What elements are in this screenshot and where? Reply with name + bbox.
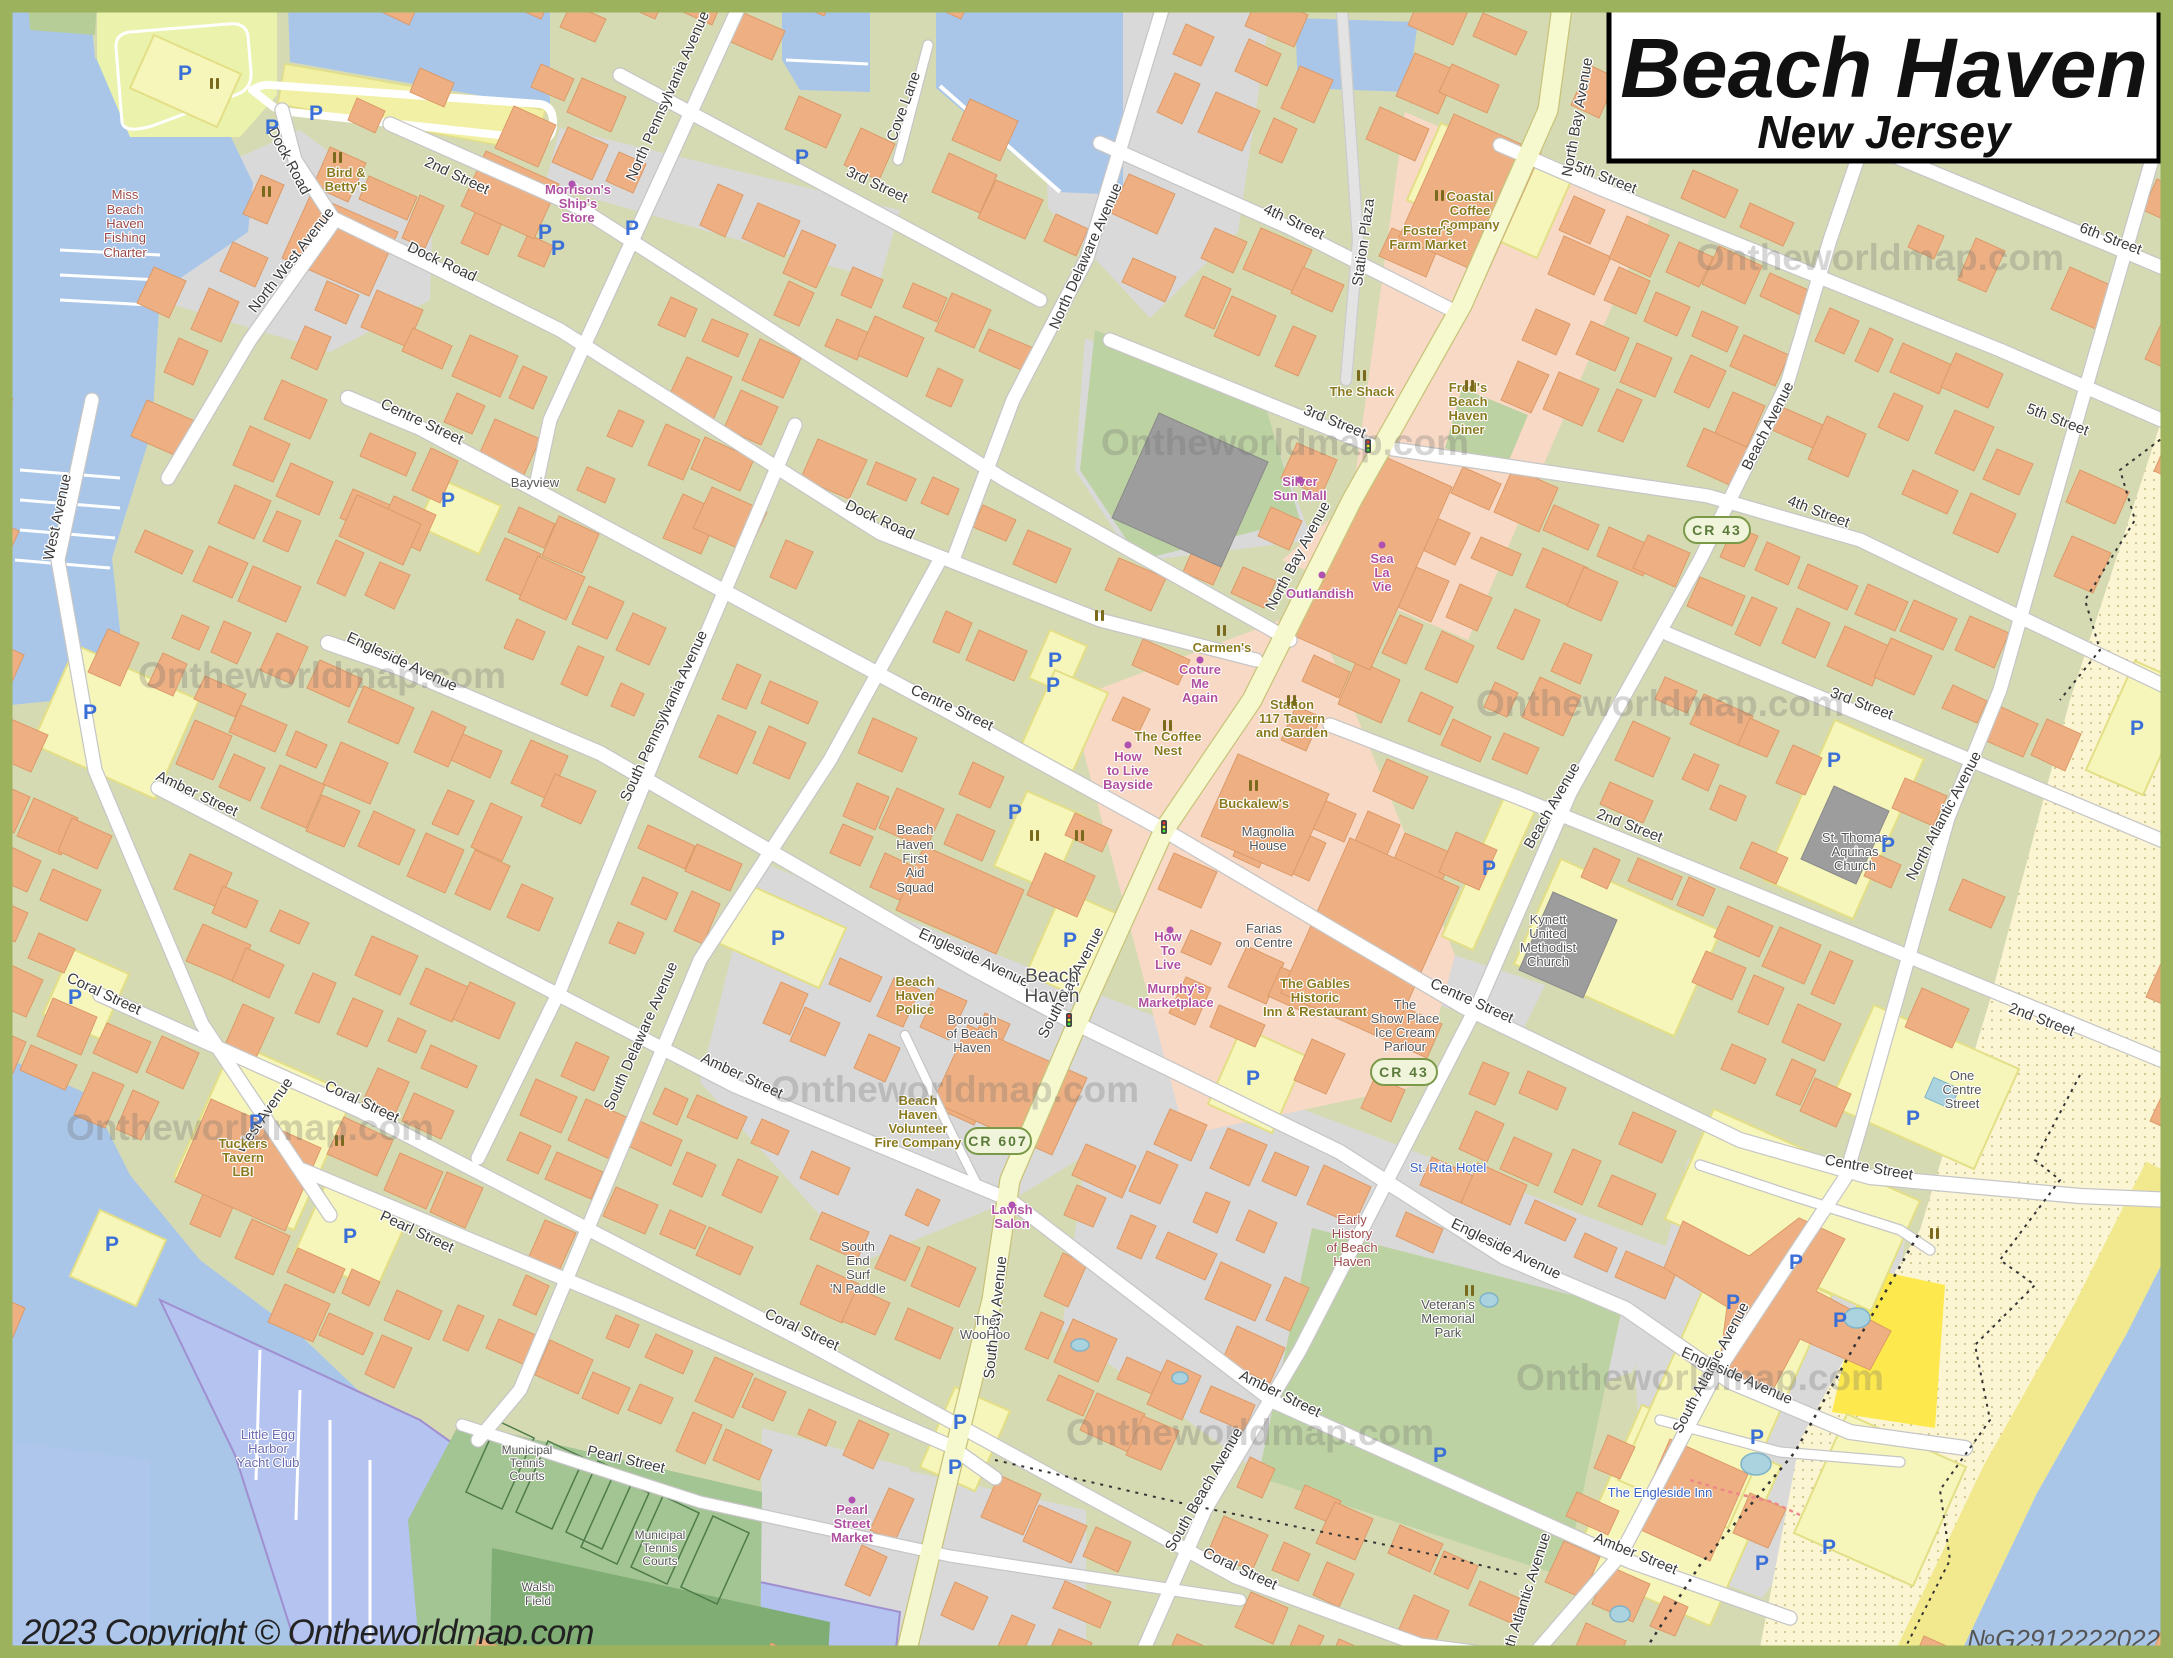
svg-text:Salon: Salon [994,1216,1029,1231]
svg-text:LBI: LBI [233,1164,254,1179]
svg-text:The Gables: The Gables [1280,976,1350,991]
svg-text:Morrison's: Morrison's [545,182,611,197]
svg-text:CR 43: CR 43 [1379,1064,1429,1080]
svg-text:Beach: Beach [1025,966,1079,987]
svg-text:Outlandish: Outlandish [1286,586,1354,601]
svg-text:P: P [1063,929,1077,952]
svg-text:Marketplace: Marketplace [1138,995,1213,1010]
svg-text:The Coffee: The Coffee [1134,729,1201,744]
svg-text:P: P [1433,1444,1447,1467]
svg-text:Tavern: Tavern [222,1150,264,1165]
svg-text:Betty's: Betty's [325,179,368,194]
svg-text:P: P [309,102,323,125]
svg-text:Church: Church [1834,858,1876,873]
svg-text:The Engleside Inn: The Engleside Inn [1608,1485,1713,1500]
svg-text:Inn & Restaurant: Inn & Restaurant [1263,1004,1368,1019]
svg-text:Sun Mall: Sun Mall [1273,488,1326,503]
svg-text:P: P [538,221,552,244]
svg-text:Haven: Haven [953,1040,991,1055]
svg-text:Tennis: Tennis [510,1456,545,1470]
svg-text:P: P [948,1456,962,1479]
svg-text:Courts: Courts [509,1469,544,1483]
svg-text:to Live: to Live [1107,763,1149,778]
svg-text:Carmen's: Carmen's [1193,640,1252,655]
svg-text:P: P [1750,1426,1764,1449]
svg-text:Municipal: Municipal [635,1528,686,1542]
svg-text:P: P [1246,1067,1260,1090]
svg-text:P: P [441,489,455,512]
svg-text:Farias: Farias [1246,921,1283,936]
svg-text:of Beach: of Beach [1326,1240,1377,1255]
svg-text:New Jersey: New Jersey [1757,106,2013,158]
svg-text:Historic: Historic [1291,990,1339,1005]
svg-text:Haven: Haven [895,988,934,1003]
svg-text:Beach: Beach [107,202,144,217]
svg-text:on Centre: on Centre [1235,935,1292,950]
svg-text:Ontheworldmap.com: Ontheworldmap.com [138,655,506,696]
svg-text:How: How [1114,749,1142,764]
svg-text:117 Tavern: 117 Tavern [1259,711,1325,726]
svg-text:First: First [902,851,928,866]
svg-text:Bayview: Bayview [511,475,560,490]
svg-text:St. Thomas: St. Thomas [1822,830,1889,845]
svg-text:Walsh: Walsh [522,1580,555,1594]
svg-text:P: P [1906,1107,1920,1130]
svg-text:Volunteer: Volunteer [889,1121,948,1136]
svg-text:The: The [974,1313,996,1328]
svg-text:The: The [1394,997,1416,1012]
svg-text:House: House [1249,838,1287,853]
svg-text:P: P [1482,857,1496,880]
svg-text:P: P [625,217,639,240]
svg-text:Bird &: Bird & [327,165,366,180]
svg-text:P: P [1726,1291,1740,1314]
svg-text:Haven: Haven [896,837,934,852]
svg-text:Ontheworldmap.com: Ontheworldmap.com [1476,683,1844,724]
svg-text:Borough: Borough [947,1012,996,1027]
svg-text:Magnolia: Magnolia [1242,824,1296,839]
svg-text:Murphy's: Murphy's [1147,981,1204,996]
svg-text:P: P [795,146,809,169]
svg-text:Courts: Courts [642,1554,677,1568]
svg-text:Vie: Vie [1372,579,1391,594]
svg-text:Street: Street [834,1516,872,1531]
svg-text:Beach: Beach [897,822,934,837]
svg-text:P: P [771,927,785,950]
svg-text:P: P [1833,1309,1847,1332]
svg-text:Buckalew's: Buckalew's [1219,796,1289,811]
svg-text:Pearl: Pearl [836,1502,868,1517]
svg-text:Store: Store [561,210,594,225]
svg-text:P: P [68,986,82,1009]
svg-text:Farm Market: Farm Market [1389,237,1467,252]
svg-text:Ontheworldmap.com: Ontheworldmap.com [1696,237,2064,278]
svg-text:Church: Church [1527,954,1569,969]
svg-text:Coffee: Coffee [1450,203,1490,218]
svg-text:The Shack: The Shack [1329,384,1395,399]
svg-text:Early: Early [1337,1212,1367,1227]
svg-text:Tennis: Tennis [643,1541,678,1555]
svg-text:Again: Again [1182,690,1218,705]
svg-text:Beach: Beach [895,974,934,989]
svg-text:P: P [1046,674,1060,697]
svg-text:Kynett: Kynett [1530,912,1567,927]
svg-text:Veteran's: Veteran's [1421,1297,1475,1312]
svg-text:One: One [1950,1068,1975,1083]
svg-text:P: P [1881,834,1895,857]
svg-text:Centre: Centre [1942,1082,1981,1097]
svg-text:Fire Company: Fire Company [875,1135,962,1150]
svg-text:Me: Me [1191,676,1209,691]
svg-text:To: To [1161,943,1176,958]
svg-text:St. Rita Hotel: St. Rita Hotel [1410,1160,1487,1175]
svg-text:P: P [83,701,97,724]
svg-text:'N Paddle: 'N Paddle [830,1281,886,1296]
svg-text:Ontheworldmap.com: Ontheworldmap.com [771,1069,1139,1110]
svg-text:Ship's: Ship's [559,196,598,211]
svg-text:Sea: Sea [1370,551,1394,566]
svg-text:CR 43: CR 43 [1692,522,1742,538]
svg-text:South: South [841,1239,875,1254]
svg-text:Miss: Miss [112,187,139,202]
svg-text:P: P [343,1225,357,1248]
svg-text:Aquinas: Aquinas [1832,844,1879,859]
svg-text:Nest: Nest [1154,743,1183,758]
svg-text:Methodist: Methodist [1520,940,1577,955]
svg-text:of Beach: of Beach [946,1026,997,1041]
svg-text:United: United [1529,926,1567,941]
svg-text:Yacht Club: Yacht Club [237,1455,300,1470]
svg-text:P: P [1789,1251,1803,1274]
svg-text:Parlour: Parlour [1384,1039,1427,1054]
svg-text:History: History [1332,1226,1373,1241]
svg-text:Field: Field [525,1594,551,1608]
svg-text:P: P [953,1411,967,1434]
svg-text:P: P [1755,1552,1769,1575]
svg-text:P: P [551,237,565,260]
svg-text:Ice Cream: Ice Cream [1375,1025,1435,1040]
svg-text:P: P [105,1233,119,1256]
svg-text:Haven: Haven [1333,1254,1371,1269]
svg-text:P: P [1048,649,1062,672]
svg-text:P: P [1008,801,1022,824]
svg-text:Park: Park [1435,1325,1462,1340]
svg-text:Little Egg: Little Egg [241,1427,295,1442]
svg-text:La: La [1374,565,1390,580]
svg-text:P: P [1827,749,1841,772]
svg-text:Live: Live [1155,957,1181,972]
svg-text:P: P [2130,717,2144,740]
svg-text:Market: Market [831,1530,874,1545]
svg-text:Ontheworldmap.com: Ontheworldmap.com [1101,422,1469,463]
svg-text:End: End [846,1253,869,1268]
svg-text:CR 607: CR 607 [968,1133,1027,1149]
svg-text:Coastal: Coastal [1447,189,1494,204]
svg-text:Coture: Coture [1179,662,1221,677]
svg-text:Ontheworldmap.com: Ontheworldmap.com [1066,1412,1434,1453]
svg-text:Police: Police [896,1002,934,1017]
svg-text:Surf: Surf [846,1267,870,1282]
svg-text:Squad: Squad [896,880,934,895]
svg-text:Charter: Charter [103,245,147,260]
svg-text:Haven: Haven [106,216,144,231]
svg-text:Show Place: Show Place [1371,1011,1440,1026]
svg-text:P: P [265,116,279,139]
svg-text:Beach: Beach [1448,394,1487,409]
svg-text:Memorial: Memorial [1421,1311,1475,1326]
svg-text:Harbor: Harbor [248,1441,288,1456]
svg-text:Fishing: Fishing [104,230,146,245]
svg-text:Station: Station [1270,697,1314,712]
svg-text:Aid: Aid [906,865,925,880]
svg-text:Haven: Haven [1025,986,1080,1007]
svg-text:Ontheworldmap.com: Ontheworldmap.com [66,1107,434,1148]
svg-text:P: P [178,62,192,85]
svg-text:Beach Haven: Beach Haven [1620,21,2148,115]
svg-text:Haven: Haven [1448,408,1487,423]
svg-text:Municipal: Municipal [502,1443,553,1457]
svg-text:Foster's: Foster's [1403,223,1453,238]
svg-text:WooHoo: WooHoo [960,1327,1010,1342]
svg-text:Ontheworldmap.com: Ontheworldmap.com [1516,1357,1884,1398]
svg-text:Bayside: Bayside [1103,777,1153,792]
svg-text:and Garden: and Garden [1256,725,1328,740]
svg-text:Street: Street [1945,1096,1980,1111]
svg-text:P: P [1822,1536,1836,1559]
